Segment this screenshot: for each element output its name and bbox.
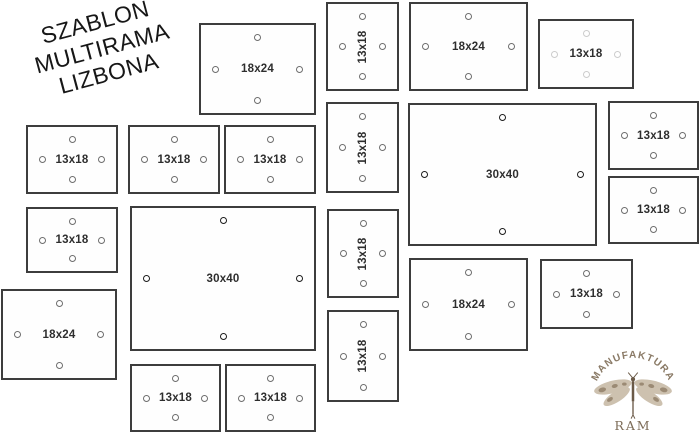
mount-hole-bottom-icon xyxy=(583,71,590,78)
frame-template-13x18-n: 13x18 xyxy=(327,209,399,298)
mount-hole-bottom-icon xyxy=(359,73,366,80)
frame-template-30x40-m: 30x40 xyxy=(130,206,316,351)
mount-hole-right-icon xyxy=(98,156,105,163)
frame-size-label: 13x18 xyxy=(56,153,89,165)
frame-size-label: 13x18 xyxy=(254,392,287,404)
mount-hole-top-icon xyxy=(359,113,366,120)
mount-hole-bottom-icon xyxy=(465,333,472,340)
mount-hole-bottom-icon xyxy=(499,228,506,235)
frame-template-13x18-l: 13x18 xyxy=(26,207,118,273)
mount-hole-left-icon xyxy=(238,395,245,402)
mount-hole-right-icon xyxy=(577,171,584,178)
page-title: SZABLON MULTIRAMA LIZBONA xyxy=(1,0,203,111)
mount-hole-bottom-icon xyxy=(172,414,179,421)
frame-size-label: 30x40 xyxy=(207,272,240,284)
mount-hole-bottom-icon xyxy=(56,362,63,369)
mount-hole-left-icon xyxy=(39,156,46,163)
frame-size-label: 18x24 xyxy=(241,63,274,75)
mount-hole-top-icon xyxy=(220,217,227,224)
mount-hole-left-icon xyxy=(621,132,628,139)
mount-hole-top-icon xyxy=(465,269,472,276)
frame-template-13x18-h: 13x18 xyxy=(326,102,399,193)
frame-size-label: 13x18 xyxy=(159,392,192,404)
frame-template-18x24-q: 18x24 xyxy=(409,258,528,351)
mount-hole-left-icon xyxy=(143,395,150,402)
mount-hole-right-icon xyxy=(379,250,386,257)
frame-size-label: 13x18 xyxy=(56,234,89,246)
mount-hole-right-icon xyxy=(296,275,303,282)
mount-hole-bottom-icon xyxy=(171,176,178,183)
mount-hole-left-icon xyxy=(212,66,219,73)
mount-hole-left-icon xyxy=(339,144,346,151)
logo-sub-text: RAM xyxy=(615,418,652,433)
mount-hole-top-icon xyxy=(69,218,76,225)
mount-hole-left-icon xyxy=(237,156,244,163)
mount-hole-left-icon xyxy=(421,171,428,178)
mount-hole-bottom-icon xyxy=(254,97,261,104)
mount-hole-left-icon xyxy=(422,43,429,50)
mount-hole-left-icon xyxy=(340,250,347,257)
mount-hole-right-icon xyxy=(613,291,620,298)
frame-size-label: 18x24 xyxy=(452,298,485,310)
mount-hole-left-icon xyxy=(553,291,560,298)
mount-hole-bottom-icon xyxy=(359,175,366,182)
frame-template-13x18-j: 13x18 xyxy=(608,101,699,170)
frame-template-13x18-g: 13x18 xyxy=(224,125,316,194)
mount-hole-top-icon xyxy=(583,30,590,37)
mount-hole-top-icon xyxy=(650,112,657,119)
mount-hole-right-icon xyxy=(614,51,621,58)
mount-hole-right-icon xyxy=(679,207,686,214)
frame-size-label: 13x18 xyxy=(570,48,603,60)
mount-hole-top-icon xyxy=(172,375,179,382)
mount-hole-top-icon xyxy=(650,187,657,194)
mount-hole-right-icon xyxy=(379,43,386,50)
mount-hole-bottom-icon xyxy=(267,176,274,183)
mount-hole-left-icon xyxy=(621,207,628,214)
mount-hole-right-icon xyxy=(97,331,104,338)
mount-hole-top-icon xyxy=(171,136,178,143)
frame-template-18x24-p: 18x24 xyxy=(1,289,117,380)
mount-hole-top-icon xyxy=(267,375,274,382)
mount-hole-left-icon xyxy=(422,301,429,308)
frame-template-13x18-t: 13x18 xyxy=(130,364,221,432)
frame-template-18x24-a: 18x24 xyxy=(199,23,316,115)
frame-template-18x24-c: 18x24 xyxy=(409,2,528,91)
frame-size-label: 18x24 xyxy=(452,40,485,52)
dragonfly-icon xyxy=(593,373,674,419)
frame-template-13x18-f: 13x18 xyxy=(128,125,220,194)
mount-hole-bottom-icon xyxy=(650,226,657,233)
mount-hole-left-icon xyxy=(339,43,346,50)
mount-hole-left-icon xyxy=(143,275,150,282)
frame-size-label: 13x18 xyxy=(637,129,670,141)
mount-hole-right-icon xyxy=(379,144,386,151)
mount-hole-top-icon xyxy=(360,220,367,227)
template-sheet: SZABLON MULTIRAMA LIZBONA 18x2413x1818x2… xyxy=(0,0,700,435)
mount-hole-right-icon xyxy=(98,237,105,244)
mount-hole-left-icon xyxy=(141,156,148,163)
frame-size-label: 18x24 xyxy=(43,328,76,340)
mount-hole-bottom-icon xyxy=(465,73,472,80)
frame-size-label: 13x18 xyxy=(158,153,191,165)
mount-hole-right-icon xyxy=(296,156,303,163)
mount-hole-left-icon xyxy=(14,331,21,338)
mount-hole-bottom-icon xyxy=(220,333,227,340)
manufaktura-ram-logo: MANUFAKTURA RAM xyxy=(583,338,683,434)
mount-hole-top-icon xyxy=(465,13,472,20)
frame-template-13x18-k: 13x18 xyxy=(608,176,699,244)
mount-hole-right-icon xyxy=(379,353,386,360)
frame-size-label: 13x18 xyxy=(570,288,603,300)
mount-hole-right-icon xyxy=(296,395,303,402)
frame-template-13x18-e: 13x18 xyxy=(26,125,118,194)
mount-hole-bottom-icon xyxy=(650,152,657,159)
mount-hole-top-icon xyxy=(583,270,590,277)
mount-hole-top-icon xyxy=(267,136,274,143)
frame-size-label: 13x18 xyxy=(357,237,369,270)
mount-hole-top-icon xyxy=(69,136,76,143)
mount-hole-top-icon xyxy=(359,13,366,20)
frame-size-label: 13x18 xyxy=(357,131,369,164)
frame-size-label: 13x18 xyxy=(357,30,369,63)
mount-hole-top-icon xyxy=(254,34,261,41)
mount-hole-bottom-icon xyxy=(267,414,274,421)
mount-hole-right-icon xyxy=(200,156,207,163)
mount-hole-top-icon xyxy=(360,321,367,328)
mount-hole-right-icon xyxy=(296,66,303,73)
mount-hole-bottom-icon xyxy=(69,255,76,262)
mount-hole-left-icon xyxy=(39,237,46,244)
mount-hole-left-icon xyxy=(551,51,558,58)
frame-size-label: 13x18 xyxy=(637,204,670,216)
frame-template-13x18-u: 13x18 xyxy=(225,364,316,432)
mount-hole-right-icon xyxy=(508,301,515,308)
mount-hole-top-icon xyxy=(56,300,63,307)
frame-template-13x18-r: 13x18 xyxy=(540,259,633,329)
frame-template-13x18-d: 13x18 xyxy=(538,19,634,89)
mount-hole-right-icon xyxy=(679,132,686,139)
mount-hole-bottom-icon xyxy=(583,311,590,318)
mount-hole-right-icon xyxy=(201,395,208,402)
mount-hole-bottom-icon xyxy=(69,176,76,183)
frame-template-13x18-b: 13x18 xyxy=(326,2,399,91)
mount-hole-top-icon xyxy=(499,114,506,121)
frame-size-label: 13x18 xyxy=(357,340,369,373)
mount-hole-left-icon xyxy=(340,353,347,360)
mount-hole-bottom-icon xyxy=(360,280,367,287)
mount-hole-bottom-icon xyxy=(360,384,367,391)
frame-size-label: 30x40 xyxy=(486,168,519,180)
frame-size-label: 13x18 xyxy=(254,153,287,165)
frame-template-13x18-s: 13x18 xyxy=(327,310,399,402)
mount-hole-right-icon xyxy=(508,43,515,50)
frame-template-30x40-i: 30x40 xyxy=(408,103,597,246)
